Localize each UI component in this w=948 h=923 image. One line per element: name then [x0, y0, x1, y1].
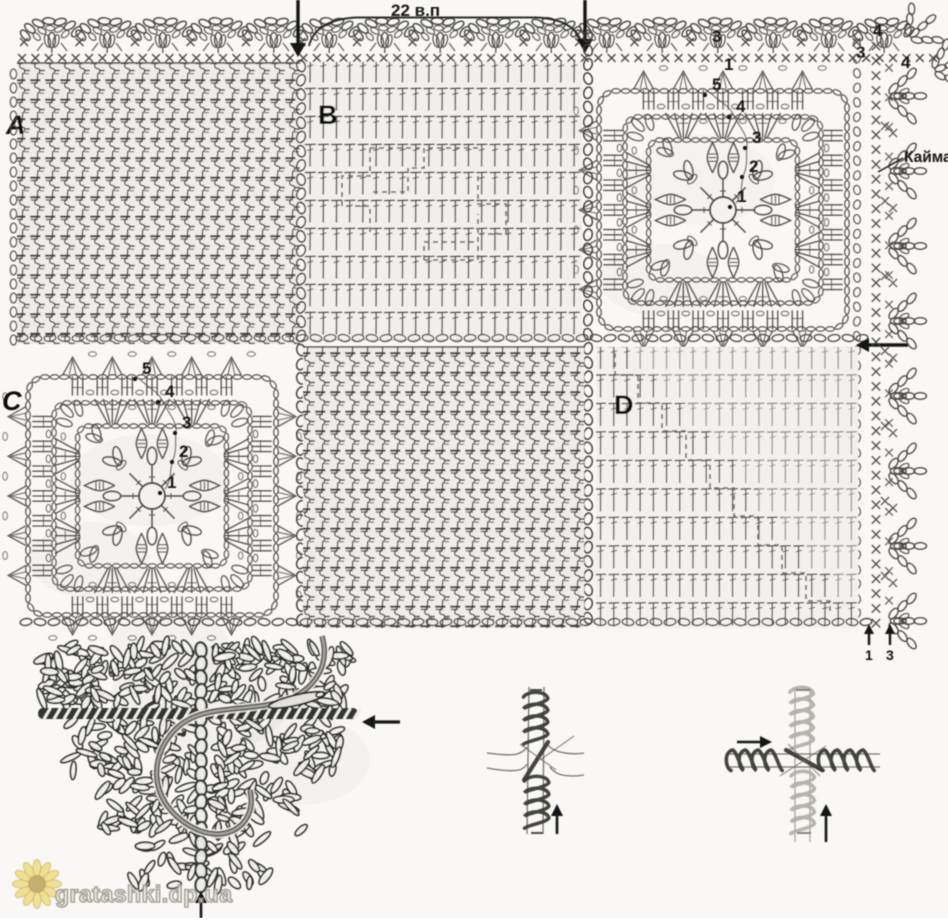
svg-text:3: 3: [712, 27, 721, 46]
svg-text:22 в.п: 22 в.п: [391, 1, 440, 20]
svg-text:Кайма: Кайма: [904, 149, 948, 166]
svg-text:B: B: [318, 100, 338, 130]
svg-text:5: 5: [142, 359, 151, 378]
svg-text:3: 3: [182, 413, 191, 432]
svg-text:1: 1: [865, 647, 873, 663]
svg-text:2: 2: [749, 157, 758, 176]
svg-text:1: 1: [737, 187, 746, 206]
svg-text:4: 4: [736, 97, 746, 116]
svg-text:4: 4: [165, 382, 175, 401]
svg-text:gratashki.dp.ua: gratashki.dp.ua: [55, 881, 232, 907]
svg-text:D: D: [614, 390, 634, 420]
svg-text:1: 1: [167, 473, 176, 492]
svg-text:C: C: [2, 386, 22, 416]
svg-text:1: 1: [724, 55, 733, 74]
svg-text:2: 2: [179, 442, 188, 461]
svg-text:4: 4: [901, 53, 911, 72]
svg-text:3: 3: [752, 128, 761, 147]
svg-text:5: 5: [712, 75, 721, 94]
svg-text:4: 4: [873, 21, 883, 40]
svg-text:3: 3: [886, 647, 894, 663]
